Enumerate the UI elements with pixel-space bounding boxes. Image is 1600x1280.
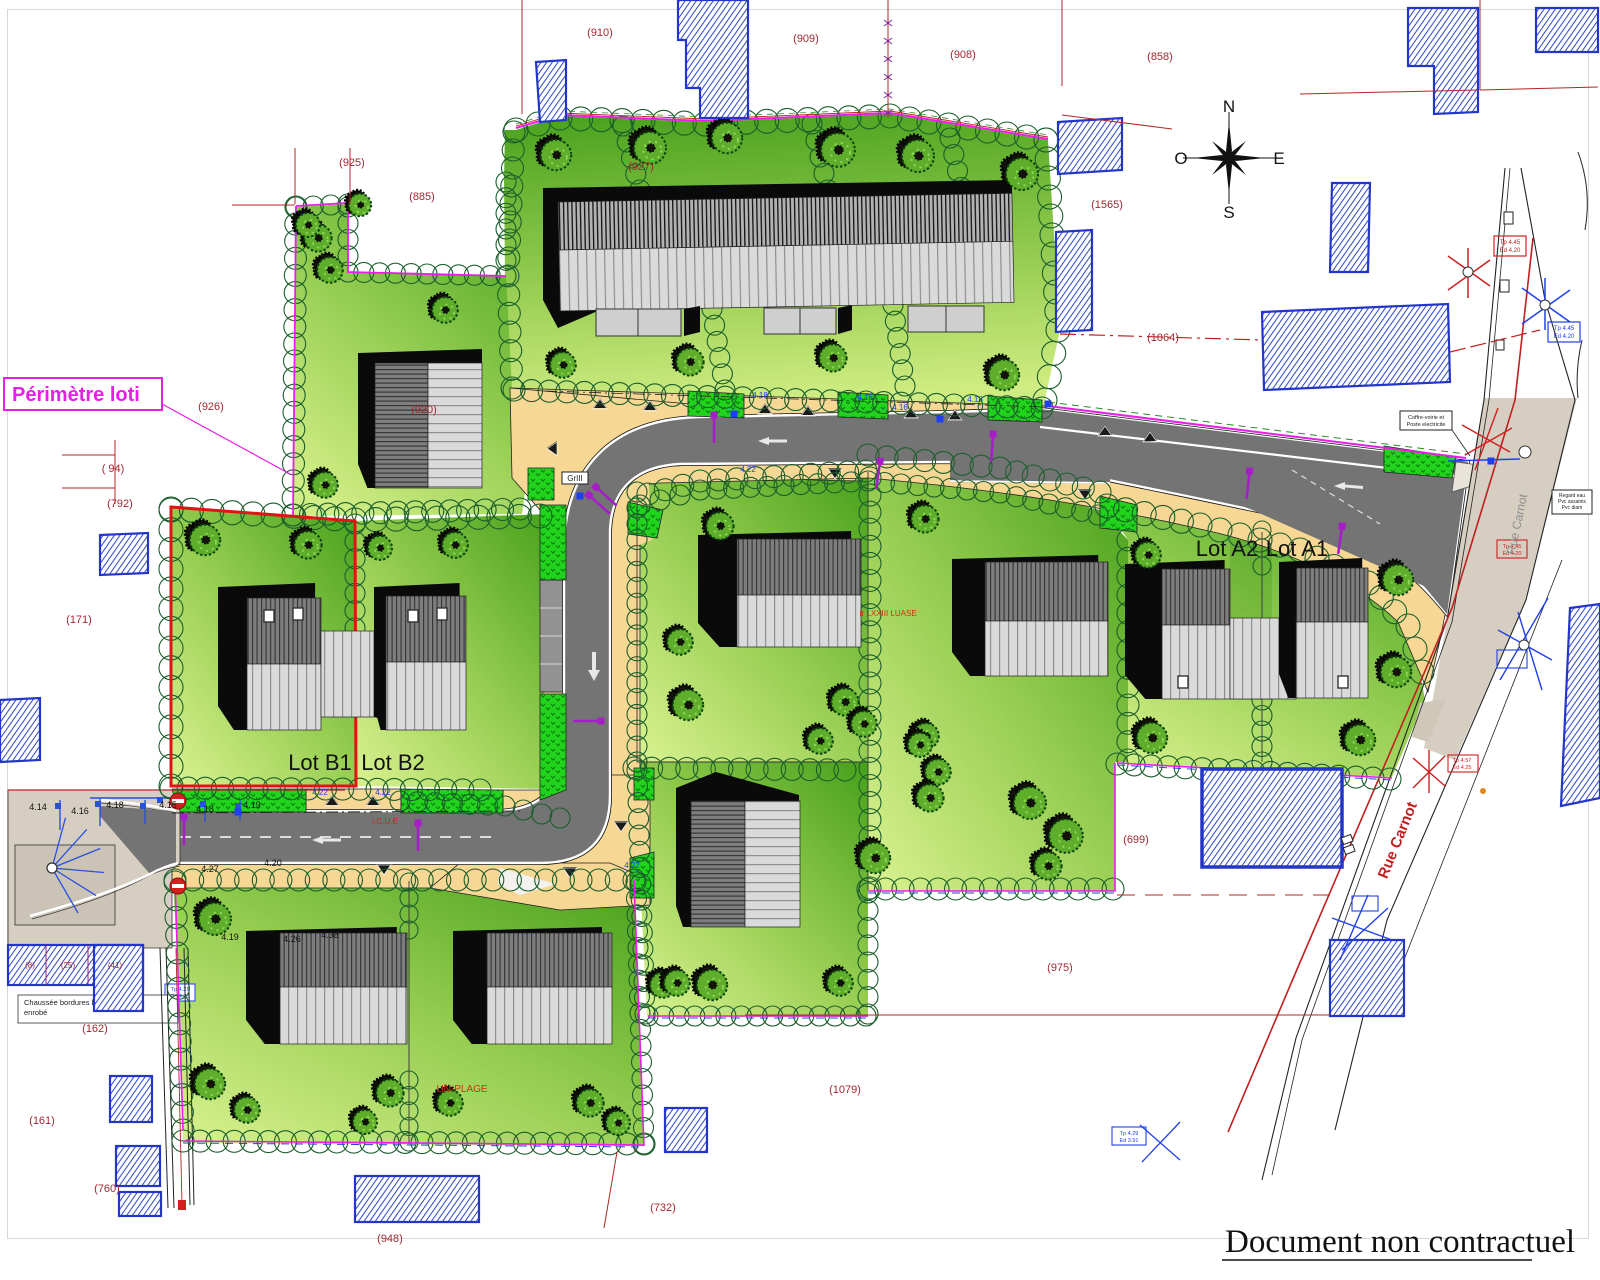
svg-text:N: N (1223, 97, 1235, 116)
svg-text:(858): (858) (1147, 51, 1173, 63)
svg-text:Ir LXXIII LUASE: Ir LXXIII LUASE (859, 609, 916, 618)
svg-text:Tp 4.45: Tp 4.45 (1500, 240, 1521, 246)
svg-text:Coffre-voirie et: Coffre-voirie et (1408, 415, 1444, 421)
svg-text:(927): (927) (628, 161, 654, 173)
svg-text:(732): (732) (650, 1202, 676, 1214)
svg-text:Tp 4.45: Tp 4.45 (1554, 326, 1575, 332)
svg-text:(910): (910) (587, 27, 613, 39)
svg-text:Poste electricite: Poste electricite (1407, 422, 1446, 428)
svg-text:E: E (1273, 149, 1284, 168)
svg-text:(925): (925) (339, 157, 365, 169)
svg-text:Tp 4.21: Tp 4.21 (171, 987, 190, 993)
svg-text:( 94): ( 94) (102, 463, 125, 475)
svg-text:4.20: 4.20 (264, 858, 282, 868)
svg-text:4.18: 4.18 (196, 804, 214, 814)
svg-text:(41): (41) (108, 961, 123, 970)
svg-text:r.C.U.E: r.C.U.E (372, 817, 398, 826)
svg-text:4.22: 4.22 (740, 465, 756, 474)
svg-text:4.27: 4.27 (201, 864, 219, 874)
svg-text:(975): (975) (1047, 962, 1073, 974)
svg-text:(792): (792) (107, 498, 133, 510)
svg-text:4.18: 4.18 (967, 395, 983, 404)
svg-text:Lot B1: Lot B1 (288, 750, 352, 775)
svg-text:O: O (1174, 149, 1187, 168)
svg-text:4.26: 4.26 (283, 934, 301, 944)
svg-text:(1079): (1079) (829, 1084, 861, 1096)
svg-text:(885): (885) (409, 191, 435, 203)
svg-text:Tp 4.57: Tp 4.57 (1453, 758, 1472, 764)
svg-text:Lot B2: Lot B2 (361, 750, 425, 775)
svg-text:4.18: 4.18 (857, 393, 873, 402)
svg-text:4.22: 4.22 (375, 788, 391, 797)
svg-text:4.22: 4.22 (312, 788, 328, 797)
svg-text:4.16: 4.16 (892, 403, 908, 412)
svg-text:enrobé: enrobé (24, 1008, 47, 1017)
svg-text:Pvc diam: Pvc diam (1562, 505, 1583, 511)
svg-text:(926): (926) (198, 401, 224, 413)
svg-text:(8): (8) (25, 961, 35, 970)
svg-text:Ed 4.25: Ed 4.25 (1453, 765, 1472, 771)
svg-text:4.38: 4.38 (321, 930, 339, 940)
svg-text:Périmètre loti: Périmètre loti (12, 384, 140, 406)
svg-text:4.15: 4.15 (159, 800, 177, 810)
svg-text:(909): (909) (793, 33, 819, 45)
svg-text:Document non contractuel: Document non contractuel (1225, 1224, 1575, 1260)
svg-text:4.19: 4.19 (221, 932, 239, 942)
svg-text:UN-PLAGE: UN-PLAGE (436, 1084, 487, 1095)
svg-text:4.22: 4.22 (624, 861, 640, 870)
svg-text:4.18: 4.18 (106, 800, 124, 810)
svg-text:(920): (920) (411, 404, 437, 416)
svg-text:(1064): (1064) (1147, 332, 1179, 344)
svg-text:Ed 4.20: Ed 4.20 (1500, 248, 1521, 254)
svg-text:(760): (760) (94, 1183, 120, 1195)
svg-text:(699): (699) (1123, 834, 1149, 846)
svg-text:(171): (171) (66, 614, 92, 626)
svg-text:Ed 4.20: Ed 4.20 (1554, 334, 1575, 340)
svg-text:4.14: 4.14 (29, 802, 47, 812)
svg-text:(1565): (1565) (1091, 199, 1123, 211)
svg-text:(161): (161) (29, 1115, 55, 1127)
svg-text:Lot A2: Lot A2 (1196, 536, 1258, 561)
svg-text:4.19: 4.19 (243, 800, 261, 810)
svg-text:(25): (25) (61, 961, 76, 970)
svg-text:(162): (162) (82, 1023, 108, 1035)
svg-text:Ed 3.91: Ed 3.91 (1120, 1138, 1139, 1144)
svg-text:GrIII: GrIII (567, 474, 583, 483)
svg-text:S: S (1223, 203, 1234, 222)
svg-text:Lot A1: Lot A1 (1266, 536, 1328, 561)
svg-text:(948): (948) (377, 1233, 403, 1245)
svg-text:4.16: 4.16 (71, 806, 89, 816)
svg-text:(908): (908) (950, 49, 976, 61)
svg-text:Tp 4.29: Tp 4.29 (1120, 1131, 1139, 1137)
svg-text:4.18: 4.18 (752, 391, 768, 400)
